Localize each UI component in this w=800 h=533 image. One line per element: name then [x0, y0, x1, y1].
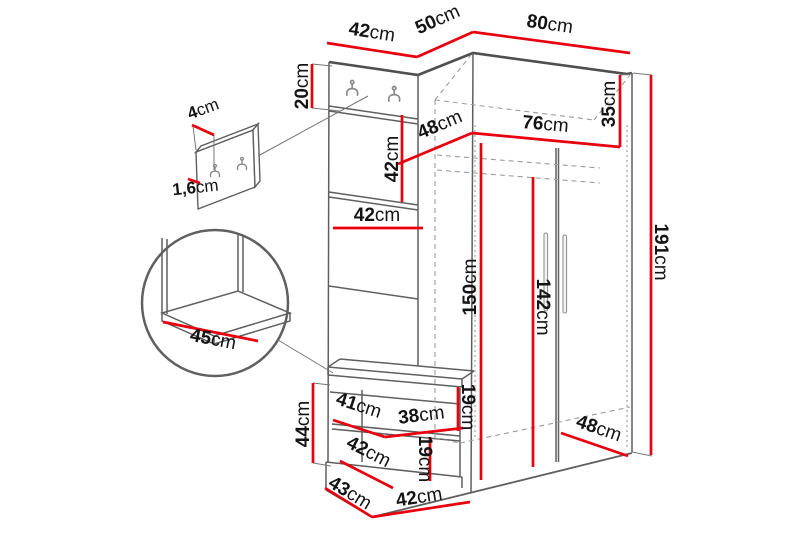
dim-door-height: 142cm — [532, 278, 553, 335]
diagram-canvas: 42cm 50cm 80cm 20cm 42cm 42cm 48cm 76cm … — [0, 0, 800, 533]
dim-top-shelf-width: 76cm — [521, 112, 569, 137]
dim-plinth-depth: 43cm — [325, 472, 376, 514]
right-door-handle — [563, 235, 567, 313]
dim-wardrobe-width: 80cm — [525, 11, 574, 38]
dim-total-height: 191cm — [650, 223, 671, 280]
dim-bench-height: 44cm — [293, 401, 314, 447]
dim-top-depth: 50cm — [412, 1, 463, 39]
dim-bench-niche-depth: 41cm — [333, 389, 384, 423]
dimension-diagram: 42cm 50cm 80cm 20cm 42cm 42cm 48cm 76cm … — [0, 0, 800, 533]
bench-detail-circle — [142, 230, 290, 376]
coat-hooks — [347, 80, 400, 101]
dim-bench-niche-width: 38cm — [397, 402, 446, 429]
coat-hook-icon — [347, 80, 358, 95]
dim-hook-section-height: 20cm — [292, 63, 313, 109]
hook-panel-detail — [196, 124, 260, 209]
dim-mirror-height: 42cm — [382, 136, 403, 182]
dim-interior-height: 150cm — [460, 258, 481, 315]
dim-bench-lower-height: 19cm — [414, 436, 435, 482]
dim-bench-niche-height: 19cm — [457, 384, 478, 430]
dim-top-panel-width: 42cm — [347, 19, 396, 47]
dim-hook-panel-depth: 4cm — [185, 94, 222, 123]
dim-panel-width: 42cm — [354, 205, 400, 226]
coat-hook-icon — [389, 86, 400, 101]
dim-top-compartment-height: 35cm — [599, 81, 620, 127]
